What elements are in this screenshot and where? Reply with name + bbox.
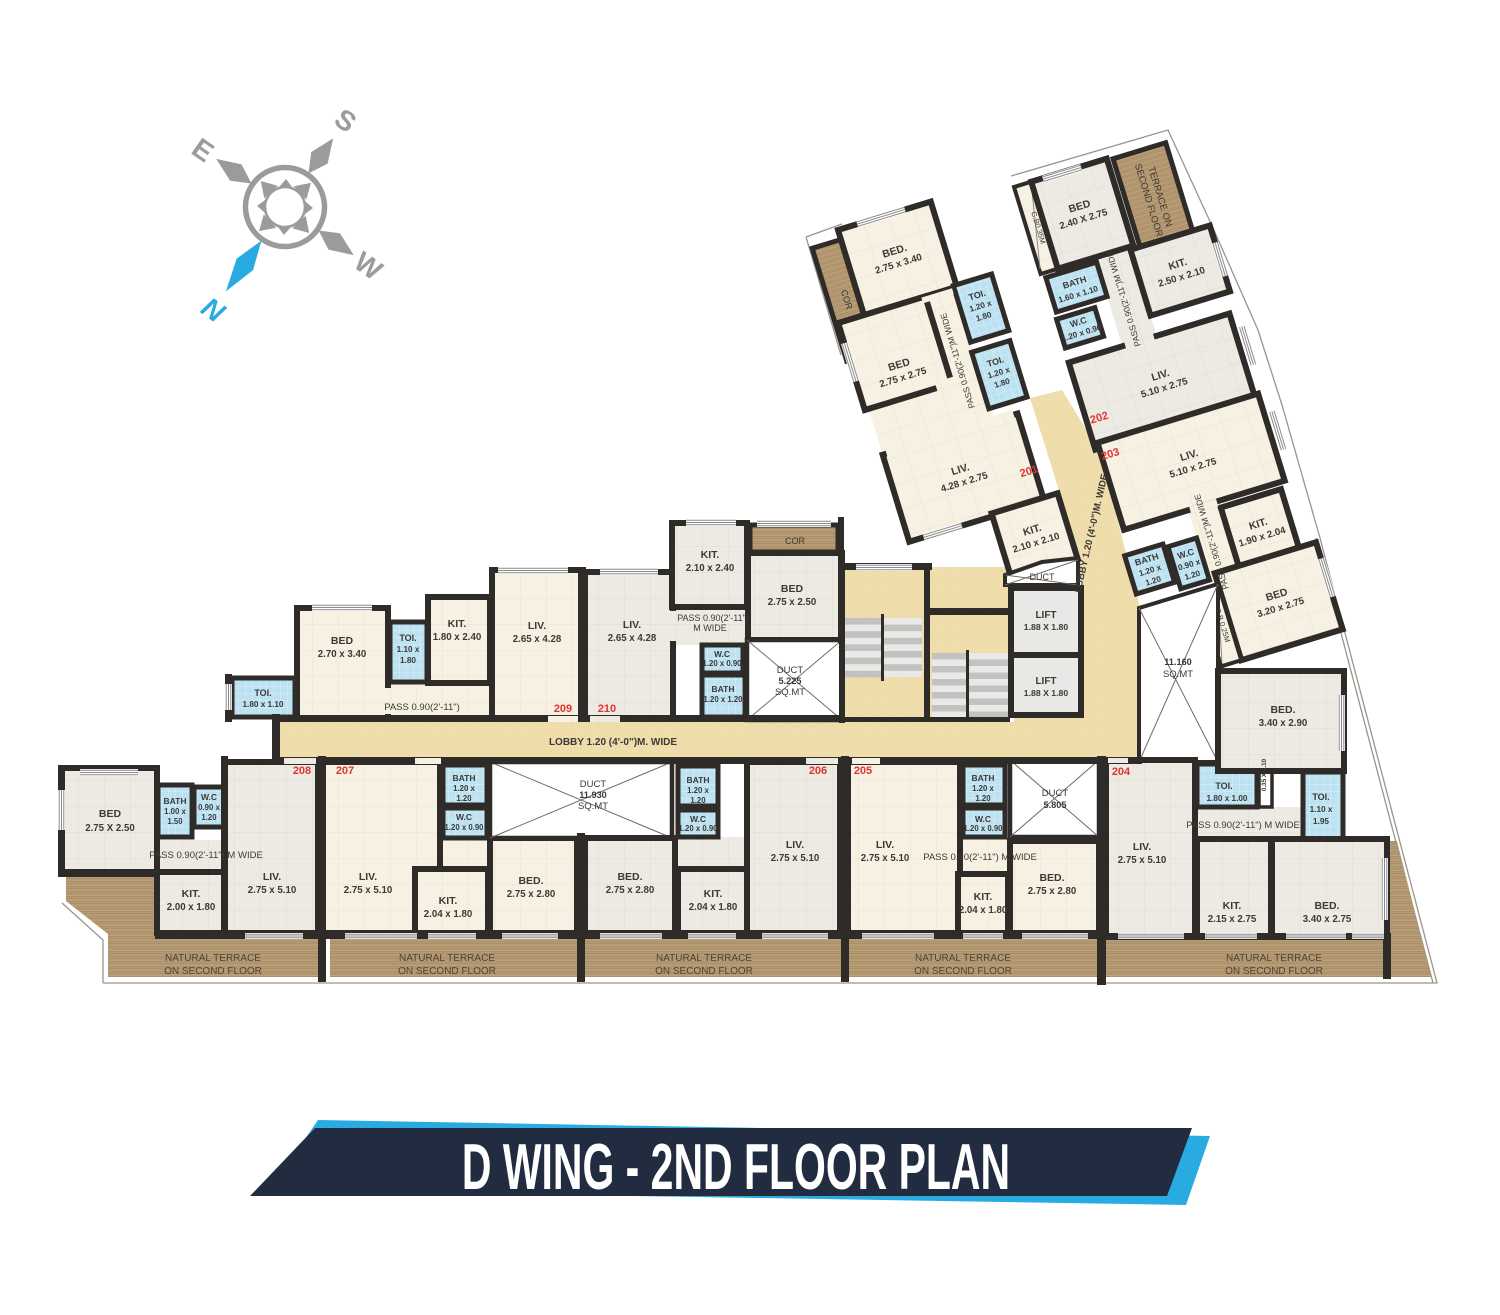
svg-text:2.00 x 1.80: 2.00 x 1.80 (167, 902, 215, 913)
svg-text:KIT.: KIT. (448, 618, 467, 630)
svg-text:5.225: 5.225 (779, 676, 802, 686)
svg-text:BATH: BATH (687, 775, 710, 785)
svg-text:DUCT: DUCT (1030, 572, 1055, 582)
svg-text:1.20 x: 1.20 x (453, 784, 475, 793)
svg-text:KIT.: KIT. (1223, 900, 1242, 912)
svg-text:TOI.: TOI. (399, 633, 416, 643)
svg-text:5.805: 5.805 (1044, 800, 1067, 810)
svg-text:2.04 x 1.80: 2.04 x 1.80 (959, 905, 1007, 916)
svg-text:LIV.: LIV. (528, 620, 546, 632)
svg-text:2.75 x 2.80: 2.75 x 2.80 (507, 889, 555, 900)
svg-text:2.75 x 5.10: 2.75 x 5.10 (344, 885, 392, 896)
svg-text:D WING - 2ND FLOOR PLAN: D WING - 2ND FLOOR PLAN (462, 1130, 1010, 1203)
svg-text:ON SECOND FLOOR: ON SECOND FLOOR (914, 966, 1012, 977)
svg-text:207: 207 (336, 765, 354, 777)
svg-text:2.75 X 2.50: 2.75 X 2.50 (85, 823, 135, 834)
svg-text:1.20 x 0.90: 1.20 x 0.90 (678, 824, 718, 833)
svg-text:LIV.: LIV. (876, 839, 894, 851)
svg-text:NATURAL TERRACE: NATURAL TERRACE (165, 953, 261, 964)
svg-text:PASS 0.90(2'-11"): PASS 0.90(2'-11") (384, 702, 460, 713)
svg-text:2.65 x 4.28: 2.65 x 4.28 (513, 634, 562, 645)
svg-text:BATH: BATH (972, 773, 995, 783)
svg-text:BED.: BED. (1270, 704, 1295, 716)
svg-text:NATURAL TERRACE: NATURAL TERRACE (915, 953, 1011, 964)
svg-text:W.C: W.C (690, 814, 706, 824)
svg-text:2.75 x 5.10: 2.75 x 5.10 (248, 885, 296, 896)
svg-text:2.04 x 1.80: 2.04 x 1.80 (689, 902, 737, 913)
svg-text:204: 204 (1112, 766, 1131, 778)
svg-text:LIV.: LIV. (786, 839, 804, 851)
svg-text:W.C: W.C (456, 812, 472, 822)
svg-text:2.65 x 4.28: 2.65 x 4.28 (608, 633, 657, 644)
svg-text:1.20 x 0.90: 1.20 x 0.90 (444, 823, 484, 832)
svg-text:3.40 x 2.90: 3.40 x 2.90 (1259, 718, 1307, 729)
svg-text:2.70 x 3.40: 2.70 x 3.40 (318, 649, 366, 660)
svg-text:LOBBY 1.20 (4'-0")M. WIDE: LOBBY 1.20 (4'-0")M. WIDE (549, 737, 677, 748)
svg-text:1.10 x: 1.10 x (1310, 805, 1333, 814)
svg-text:NATURAL TERRACE: NATURAL TERRACE (656, 953, 752, 964)
svg-text:2.75 x 5.10: 2.75 x 5.10 (861, 853, 909, 864)
svg-text:1.20 x 0.90: 1.20 x 0.90 (963, 824, 1003, 833)
svg-text:KIT.: KIT. (704, 888, 723, 900)
svg-text:2.75 x 2.80: 2.75 x 2.80 (606, 885, 654, 896)
svg-text:2.75 x 2.80: 2.75 x 2.80 (1028, 886, 1076, 897)
svg-text:1.88 X 1.80: 1.88 X 1.80 (1024, 688, 1069, 698)
svg-text:PASS 0.90(2'-11") M WIDE: PASS 0.90(2'-11") M WIDE (1186, 820, 1300, 831)
svg-text:BED.: BED. (617, 871, 642, 883)
svg-text:209: 209 (554, 703, 572, 715)
svg-text:1.20 x: 1.20 x (972, 784, 994, 793)
svg-text:BED: BED (99, 808, 122, 820)
svg-text:1.80: 1.80 (400, 656, 416, 665)
svg-text:TOI.: TOI. (1312, 792, 1329, 802)
svg-text:LIV.: LIV. (263, 871, 281, 883)
svg-text:2.75 x 5.10: 2.75 x 5.10 (771, 853, 819, 864)
svg-text:BED.: BED. (1314, 900, 1339, 912)
svg-text:1.20: 1.20 (456, 794, 472, 803)
svg-text:PASS 0.90(2'-11") M WIDE: PASS 0.90(2'-11") M WIDE (149, 850, 263, 861)
svg-text:205: 205 (854, 765, 872, 777)
svg-text:ON SECOND FLOOR: ON SECOND FLOOR (1225, 966, 1323, 977)
svg-text:BED.: BED. (518, 875, 543, 887)
svg-text:DUCT: DUCT (580, 779, 607, 790)
svg-text:LIFT: LIFT (1035, 676, 1056, 687)
svg-text:210: 210 (598, 703, 616, 715)
svg-text:SQ.MT: SQ.MT (578, 801, 608, 812)
svg-text:KIT.: KIT. (439, 895, 458, 907)
svg-text:2.15 x 2.75: 2.15 x 2.75 (1208, 914, 1257, 925)
svg-text:0.35 X 1.10: 0.35 X 1.10 (1261, 758, 1268, 791)
svg-text:LIV.: LIV. (623, 619, 641, 631)
svg-text:BATH: BATH (164, 796, 187, 806)
svg-text:W.C: W.C (975, 814, 991, 824)
svg-text:BATH: BATH (712, 684, 735, 694)
svg-text:BATH: BATH (453, 773, 476, 783)
svg-text:ON SECOND FLOOR: ON SECOND FLOOR (398, 966, 496, 977)
svg-text:DUCT: DUCT (777, 665, 804, 676)
svg-text:W.C: W.C (201, 792, 217, 802)
svg-text:LIV.: LIV. (359, 871, 377, 883)
svg-text:TOI.: TOI. (1215, 781, 1232, 791)
svg-text:2.75 x 2.50: 2.75 x 2.50 (768, 597, 816, 608)
svg-text:1.50: 1.50 (167, 817, 183, 826)
svg-text:1.20: 1.20 (201, 813, 217, 822)
svg-text:208: 208 (293, 765, 311, 777)
svg-text:1.88 X 1.80: 1.88 X 1.80 (1024, 622, 1069, 632)
svg-text:2.10 x 2.40: 2.10 x 2.40 (686, 563, 734, 574)
svg-text:PASS 0.90(2'-11"): PASS 0.90(2'-11") (677, 613, 749, 623)
svg-text:LIV.: LIV. (1133, 841, 1151, 853)
svg-text:W.C: W.C (714, 649, 730, 659)
svg-text:BED: BED (781, 583, 804, 595)
svg-text:KIT.: KIT. (701, 549, 720, 561)
svg-text:ON SECOND FLOOR: ON SECOND FLOOR (164, 966, 262, 977)
svg-text:NATURAL TERRACE: NATURAL TERRACE (399, 953, 495, 964)
svg-text:2.04 x 1.80: 2.04 x 1.80 (424, 909, 472, 920)
svg-text:PASS 0.90(2'-11") M WIDE: PASS 0.90(2'-11") M WIDE (923, 852, 1037, 863)
svg-text:1.20 x 0.90: 1.20 x 0.90 (702, 659, 742, 668)
svg-text:1.10 x: 1.10 x (397, 645, 420, 654)
svg-text:TOI.: TOI. (254, 688, 271, 698)
svg-text:BED: BED (331, 635, 354, 647)
svg-text:3.40 x 2.75: 3.40 x 2.75 (1303, 914, 1352, 925)
svg-text:ON SECOND FLOOR: ON SECOND FLOOR (655, 966, 753, 977)
svg-text:BED.: BED. (1039, 872, 1064, 884)
svg-text:COR: COR (785, 536, 806, 546)
svg-text:1.20 x 1.20: 1.20 x 1.20 (703, 695, 743, 704)
svg-text:206: 206 (809, 765, 827, 777)
svg-text:0.90 x: 0.90 x (198, 803, 220, 812)
svg-text:NATURAL TERRACE: NATURAL TERRACE (1226, 953, 1322, 964)
svg-text:SQ.MT: SQ.MT (775, 687, 805, 698)
svg-text:DUCT: DUCT (1042, 788, 1069, 799)
svg-text:1.80 x 2.40: 1.80 x 2.40 (433, 632, 481, 643)
svg-text:1.20 x: 1.20 x (687, 786, 709, 795)
svg-text:SQ.MT: SQ.MT (1163, 669, 1193, 680)
svg-text:LIFT: LIFT (1035, 610, 1056, 621)
svg-text:KIT.: KIT. (974, 891, 993, 903)
svg-text:11.930: 11.930 (579, 790, 607, 800)
svg-text:1.80 x 1.10: 1.80 x 1.10 (243, 700, 284, 709)
svg-text:1.95: 1.95 (1313, 817, 1329, 826)
svg-text:2.75 x 5.10: 2.75 x 5.10 (1118, 855, 1166, 866)
svg-text:1.80 x 1.00: 1.80 x 1.00 (1207, 794, 1248, 803)
svg-text:11.160: 11.160 (1164, 657, 1192, 667)
svg-text:1.20: 1.20 (690, 796, 706, 805)
svg-text:M WIDE: M WIDE (693, 623, 727, 633)
svg-text:1.20: 1.20 (975, 794, 991, 803)
svg-text:1.00 x: 1.00 x (164, 807, 186, 816)
svg-text:KIT.: KIT. (182, 888, 201, 900)
